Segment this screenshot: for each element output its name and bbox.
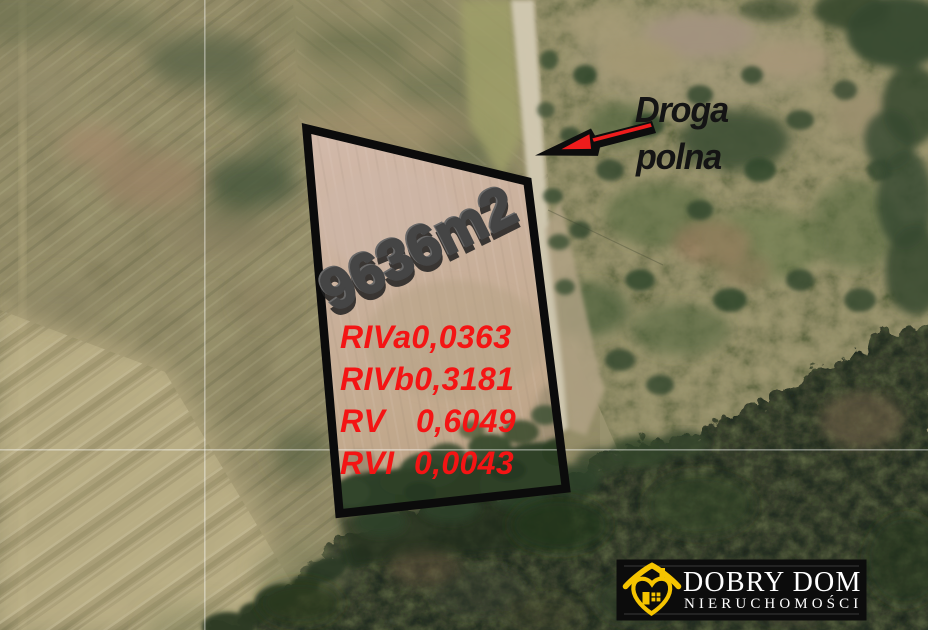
svg-text:RVI: RVI [340, 445, 395, 481]
svg-text:0,0043: 0,0043 [414, 445, 514, 481]
svg-text:RV: RV [340, 403, 387, 439]
svg-text:polna: polna [635, 136, 721, 177]
svg-text:NIERUCHOMOŚCI: NIERUCHOMOŚCI [684, 595, 862, 612]
svg-text:RIVa0,0363: RIVa0,0363 [340, 319, 511, 355]
svg-text:DOBRY DOM: DOBRY DOM [683, 567, 862, 598]
svg-text:RIVb0,3181: RIVb0,3181 [340, 361, 514, 397]
svg-text:0,6049: 0,6049 [416, 403, 516, 439]
